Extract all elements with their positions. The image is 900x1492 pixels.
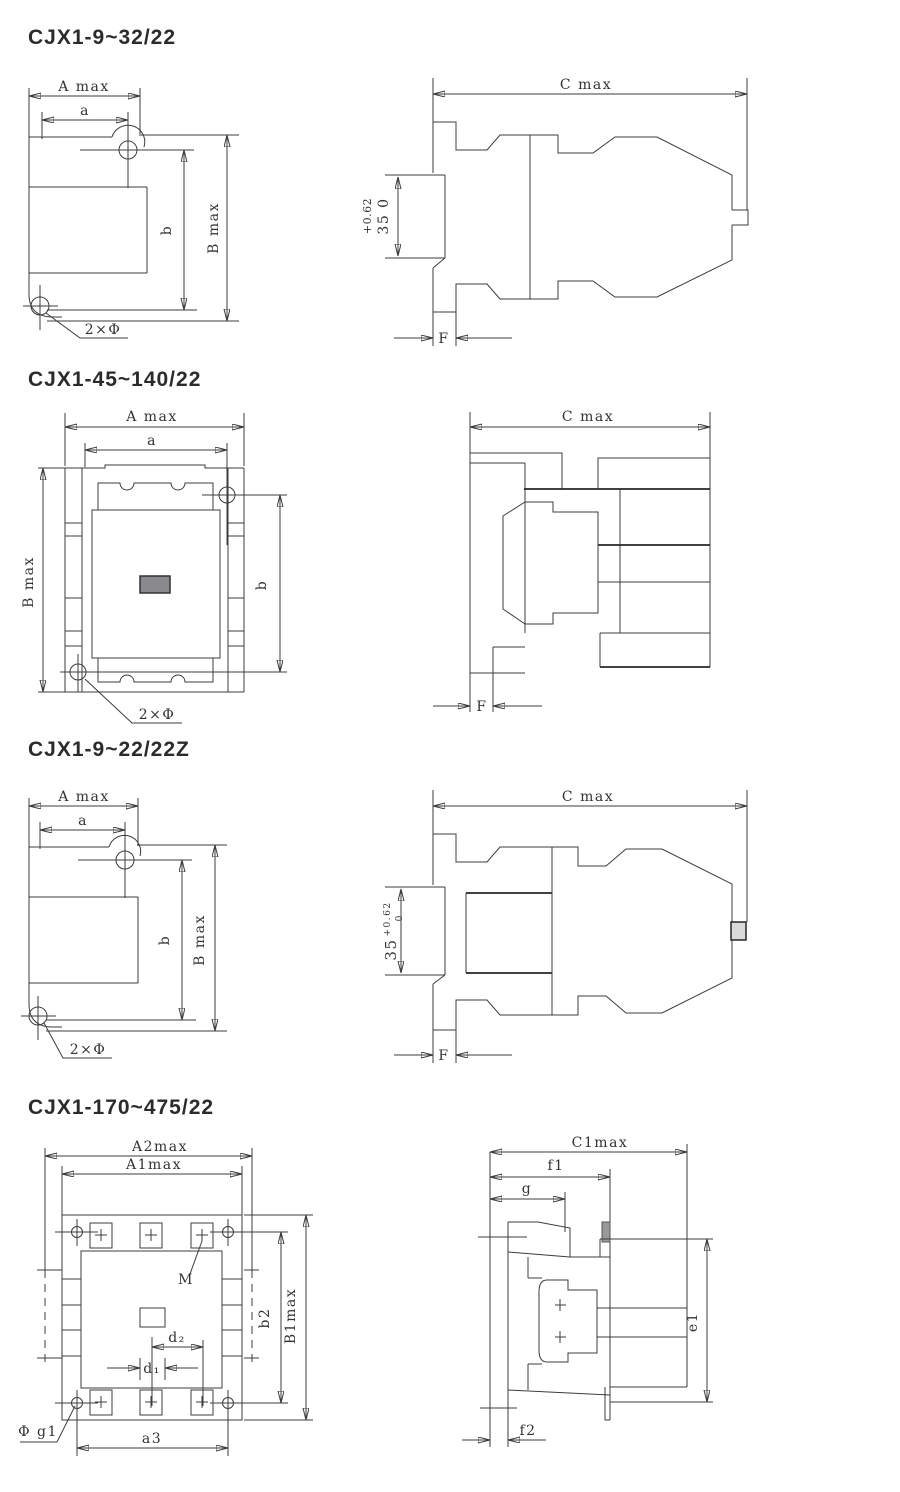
dim-label-a: a	[147, 433, 157, 449]
nameplate	[140, 576, 170, 593]
dim-label-b2: b2	[257, 1308, 273, 1329]
coil-terminal-marks	[555, 1299, 566, 1343]
view-s2-front: A max a	[21, 409, 287, 723]
dim-label-b-max: B max	[192, 914, 208, 966]
dim-label-f2: f2	[519, 1423, 536, 1439]
dim-label-c-max: C max	[562, 789, 614, 805]
dim-label-a-max: A max	[125, 409, 178, 425]
hole-callout: 2×Φ	[70, 1042, 107, 1058]
tolerance-upper: +0.62	[361, 198, 374, 234]
center-window	[140, 1308, 165, 1327]
terminal-block	[98, 658, 213, 682]
terminal-block	[732, 210, 748, 225]
drawing-sheet: CJX1-9~32/22 CJX1-45~140/22 CJX1-9~22/22…	[0, 0, 900, 1492]
dim-label-phi-g1: Φ g1	[18, 1424, 58, 1440]
dim-label-g: g	[522, 1181, 532, 1197]
view-s3-front: A max a b B max 2×Φ	[21, 789, 227, 1058]
hole-callout: 2×Φ	[139, 707, 176, 723]
dim-label-c-max: C max	[562, 409, 614, 425]
svg-text:35+0.620: 35+0.620	[382, 901, 405, 960]
technical-drawing: A max a b B max 2×Φ C max	[0, 0, 900, 1492]
dim-label-b-max: B max	[21, 556, 37, 608]
dim-label-e1: e1	[685, 1312, 701, 1332]
dim-label-a-max: A max	[57, 79, 110, 95]
label-m: M	[178, 1272, 194, 1288]
magnet-core	[525, 502, 598, 624]
terminal-row-top	[90, 1223, 213, 1248]
view-s1-side: C max +0.62 35 0 F	[361, 77, 748, 347]
terminal-block	[731, 922, 746, 940]
view-s3-side: C max 35+0.620 F	[382, 789, 747, 1064]
hook-lug	[508, 1222, 570, 1257]
tolerance-lower: 0	[395, 914, 405, 921]
dim-label-a-max: A max	[57, 789, 110, 805]
view-s2-side: C max F	[433, 409, 710, 715]
hole-callout: 2×Φ	[85, 322, 122, 338]
dim-label-f1: f1	[547, 1158, 564, 1174]
dim-label-a1max: A1max	[125, 1157, 182, 1173]
dim-label-b1max: B1max	[283, 1288, 299, 1344]
dim-label-b: b	[157, 935, 173, 945]
tolerance-upper: +0.62	[383, 901, 393, 936]
view-s4-front: A2max A1max	[18, 1139, 313, 1456]
view-s4-side: C1max f1 g	[462, 1135, 713, 1447]
mounting-holes	[55, 1219, 288, 1416]
dim-label-f: F	[476, 699, 487, 715]
dim-label-f: F	[438, 1048, 449, 1064]
tolerance-value: 35 0	[376, 197, 392, 234]
terminal-block	[98, 483, 213, 510]
dim-label-d2: d₂	[168, 1330, 186, 1346]
dim-label-b: b	[159, 225, 175, 235]
coil-block	[539, 1280, 597, 1362]
dim-label-f: F	[438, 331, 449, 347]
dim-label-b: b	[254, 580, 270, 590]
dim-label-c1max: C1max	[572, 1135, 629, 1151]
view-s1-front: A max a b B max 2×Φ	[23, 79, 239, 338]
dim-label-a: a	[78, 813, 88, 829]
dim-label-a: a	[80, 103, 90, 119]
dim-label-c-max: C max	[560, 77, 612, 93]
dim-label-d1: d₁	[143, 1361, 161, 1377]
dim-label-b-max: B max	[206, 202, 222, 254]
tolerance-value: 35	[382, 939, 400, 961]
dim-label-a3: a3	[142, 1431, 162, 1447]
dim-label-a2max: A2max	[131, 1139, 188, 1155]
